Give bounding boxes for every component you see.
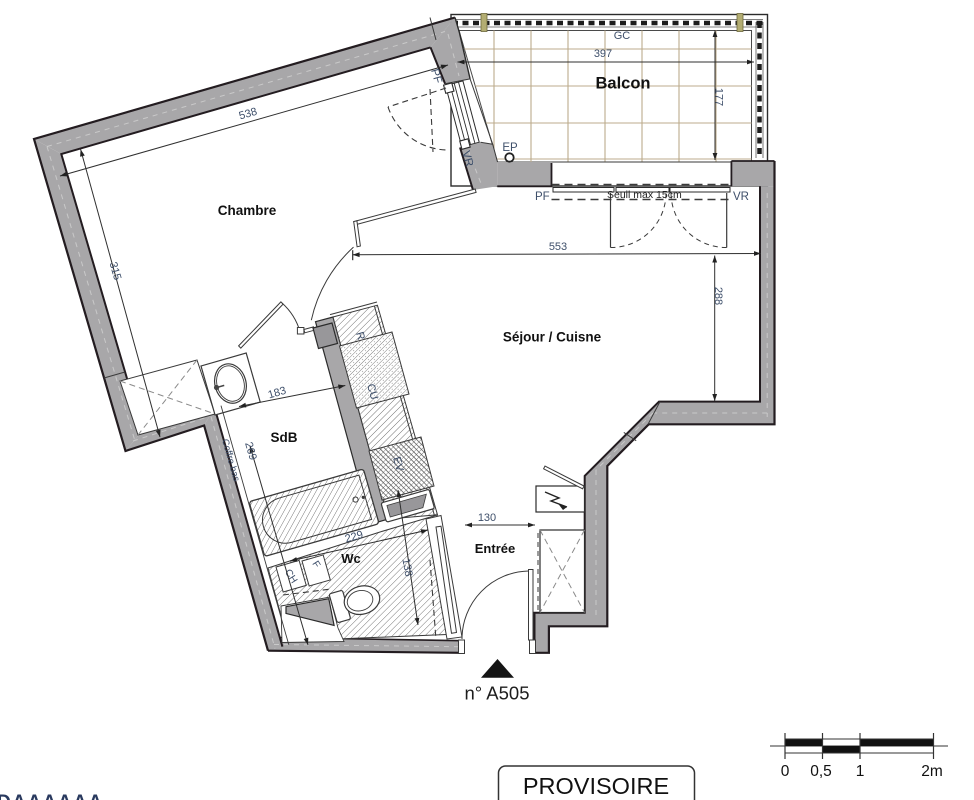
svg-text:130: 130 — [478, 512, 496, 524]
svg-text:269: 269 — [242, 441, 259, 462]
svg-text:Entrée: Entrée — [475, 541, 515, 556]
svg-text:1: 1 — [856, 763, 865, 780]
svg-text:SdB: SdB — [271, 430, 298, 445]
svg-text:315: 315 — [107, 261, 124, 282]
svg-text:Wc: Wc — [341, 551, 361, 566]
svg-text:2m: 2m — [921, 763, 943, 780]
svg-text:397: 397 — [594, 48, 612, 60]
svg-text:183: 183 — [267, 385, 288, 402]
svg-text:0,5: 0,5 — [810, 763, 832, 780]
svg-text:PROVISOIRE: PROVISOIRE — [523, 773, 669, 799]
svg-text:Séjour / Cuisne: Séjour / Cuisne — [503, 330, 602, 345]
svg-text:177: 177 — [713, 88, 725, 106]
svg-text:Chambre: Chambre — [218, 203, 277, 218]
svg-text:DAAAAAA: DAAAAAA — [0, 792, 104, 800]
svg-text:0: 0 — [781, 763, 790, 780]
svg-text:288: 288 — [712, 287, 724, 305]
svg-text:Seuil max 15cm: Seuil max 15cm — [607, 189, 682, 201]
svg-text:VR: VR — [733, 191, 749, 203]
svg-text:GC: GC — [614, 30, 631, 42]
svg-text:PF: PF — [535, 191, 550, 203]
svg-text:Balcon: Balcon — [595, 75, 650, 93]
svg-text:553: 553 — [549, 241, 567, 253]
svg-text:n° A505: n° A505 — [464, 683, 529, 704]
svg-text:EP: EP — [502, 142, 518, 154]
